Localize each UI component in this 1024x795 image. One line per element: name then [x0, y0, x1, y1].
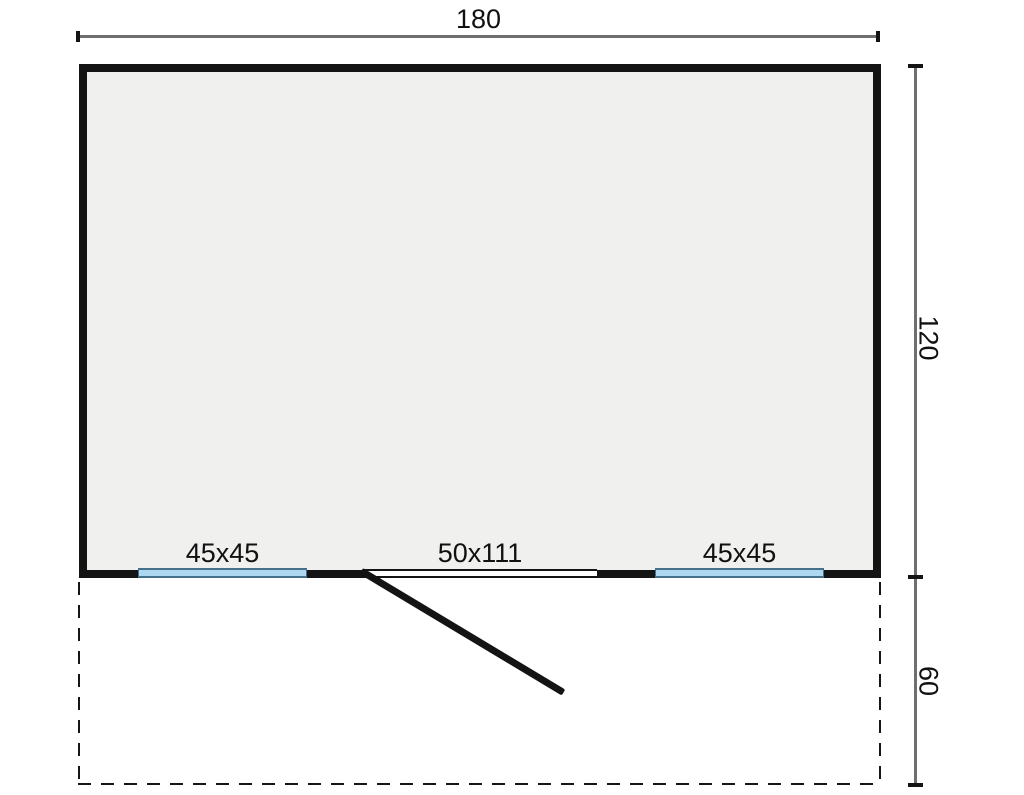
depth-dimension-bottom-tick: [908, 783, 923, 787]
depth-dimension-top-tick: [908, 64, 923, 68]
door-opening: [363, 569, 597, 578]
terrace-dashed-left-edge: [78, 582, 80, 785]
cabin-depth-label: 120: [915, 315, 942, 360]
width-dimension-line: [78, 35, 879, 38]
width-dimension-label: 180: [78, 6, 879, 33]
depth-dimension-middle-tick: [908, 575, 923, 579]
door-swing-leaf: [359, 568, 565, 696]
terrace-depth-label: 60: [915, 666, 942, 696]
right-window-size-label: 45x45: [655, 540, 824, 567]
left-window: [138, 568, 307, 578]
building-outline: [79, 64, 881, 578]
right-window: [655, 568, 824, 578]
floor-plan-drawing: 45x45 50x111 45x45 180 120 60: [0, 0, 1024, 795]
terrace-dashed-bottom-edge: [78, 783, 881, 785]
left-window-size-label: 45x45: [138, 540, 307, 567]
terrace-dashed-right-edge: [879, 582, 881, 785]
door-size-label: 50x111: [363, 540, 597, 567]
